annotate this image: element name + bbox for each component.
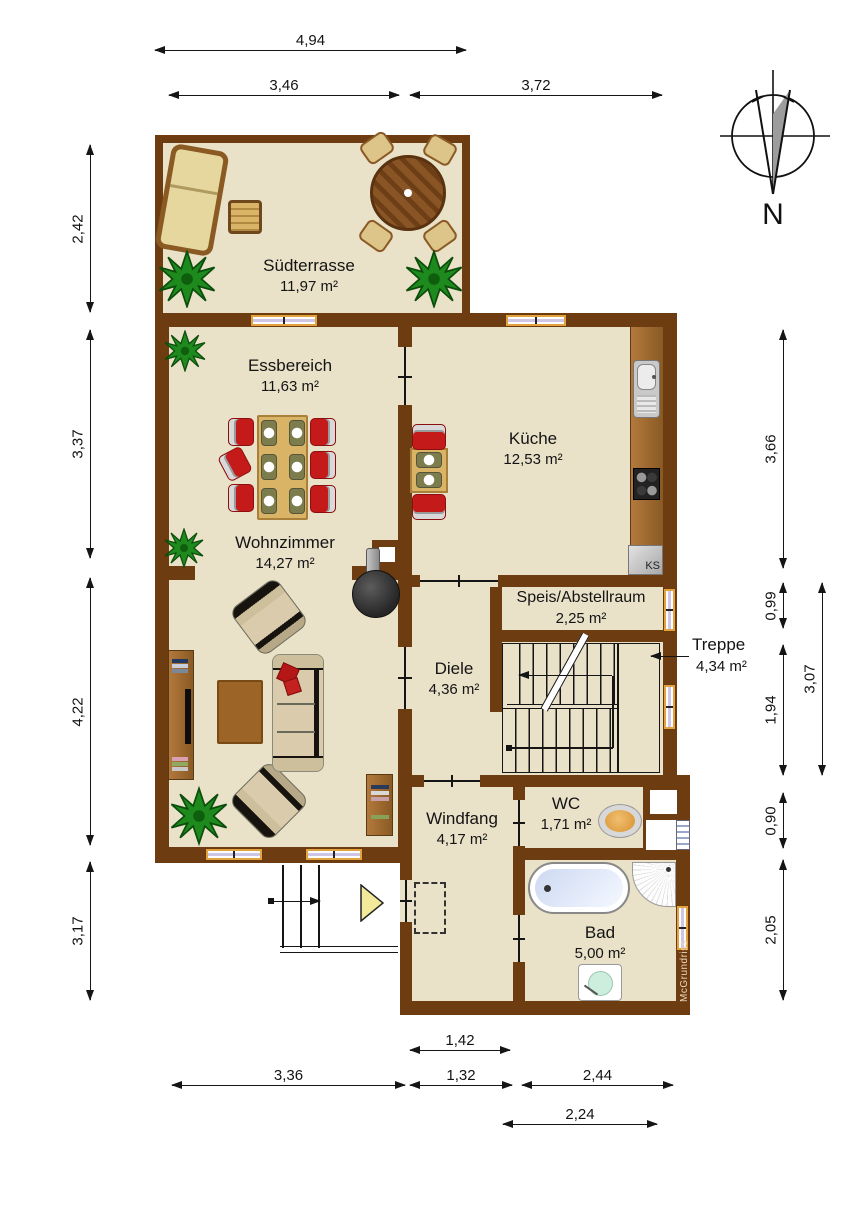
stairs-lower-flight: [503, 708, 617, 772]
door-tick: [513, 822, 525, 824]
dim-bottom-windfang-outer: 1,42: [410, 1050, 510, 1051]
entry-direction-arrow: [272, 901, 320, 902]
room-label-essbereich: Essbereich 11,63 m²: [248, 355, 332, 397]
dim-left-essbereich: 3,37: [90, 330, 91, 558]
tv: [185, 689, 191, 744]
dim-bottom-windfang: 1,32: [410, 1085, 512, 1086]
room-label-bad: Bad 5,00 m²: [575, 922, 626, 964]
stairs-walkline: [612, 676, 614, 748]
stove-cooktop: [633, 468, 660, 500]
kitchen-chair: [412, 424, 446, 450]
tv-board: [168, 650, 194, 780]
dim-left-wohnzimmer: 4,22: [90, 578, 91, 845]
door-tick: [458, 575, 460, 587]
dim-right-wc: 0,90: [783, 793, 784, 848]
place-setting: [416, 472, 442, 488]
plant-icon: [158, 250, 216, 308]
entry-recess: [646, 820, 676, 850]
wall-stub-left: [169, 566, 195, 580]
outdoor-step: [318, 865, 320, 948]
dim-top-left: 3,46: [169, 95, 399, 96]
room-label-wc: WC 1,71 m²: [541, 793, 592, 835]
entry-steps: [676, 820, 690, 850]
wall-diele-treppe: [490, 587, 502, 712]
door-tick: [398, 376, 412, 378]
window: [250, 314, 318, 327]
kitchen-chair: [412, 494, 446, 520]
stairs-walkline: [509, 747, 613, 749]
place-setting: [289, 454, 305, 480]
place-setting: [261, 420, 277, 446]
wardrobe-placeholder: [414, 882, 446, 934]
door-tick: [398, 677, 412, 679]
treppe-pointer-arrow: [651, 656, 689, 657]
room-label-speis: Speis/Abstellraum 2,25 m²: [517, 588, 646, 628]
place-setting: [261, 488, 277, 514]
door-tick: [513, 938, 525, 940]
toilet: [598, 804, 642, 838]
watermark: McGrundriss: [679, 940, 690, 1002]
shelf: [366, 774, 393, 836]
entry-recess: [650, 790, 677, 814]
sofa: [272, 654, 324, 772]
dining-chair: [228, 418, 254, 446]
room-label-windfang: Windfang 4,17 m²: [426, 808, 498, 850]
place-setting: [416, 452, 442, 468]
dim-right-kueche: 3,66: [783, 330, 784, 568]
plant-icon: [164, 528, 204, 568]
dining-chair: [310, 485, 336, 513]
round-table: [370, 155, 446, 231]
compass-icon: N: [716, 62, 836, 232]
stairs-landing-line: [617, 643, 619, 773]
room-label-diele: Diele 4,36 m²: [429, 658, 480, 700]
room-label-treppe: Treppe 4,34 m²: [692, 634, 747, 677]
place-setting: [261, 454, 277, 480]
dining-chair: [310, 418, 336, 446]
place-setting: [289, 488, 305, 514]
dining-chair: [228, 484, 254, 512]
window: [205, 848, 263, 861]
dim-right-outer: 3,07: [822, 583, 823, 775]
door-tick: [400, 900, 412, 902]
dim-right-treppe: 1,94: [783, 645, 784, 775]
dim-bottom-bad-outer: 2,44: [522, 1085, 673, 1086]
entrance-marker-icon: [360, 884, 384, 922]
room-label-suedterrasse: Südterrasse 11,97 m²: [263, 255, 355, 297]
dim-bottom-bad: 2,24: [503, 1124, 657, 1125]
coffee-table: [217, 680, 263, 744]
washbasin: [578, 964, 622, 1001]
plant-icon: [170, 785, 228, 847]
stairs-direction-arrow: [519, 675, 612, 676]
chimney-flue: [379, 547, 395, 562]
outdoor-step: [282, 865, 284, 948]
dim-left-bottom: 3,17: [90, 862, 91, 1000]
place-setting: [289, 420, 305, 446]
fridge: KS: [628, 545, 663, 575]
dim-bottom-wohnzimmer: 3,36: [172, 1085, 405, 1086]
dim-right-bad: 2,05: [783, 860, 784, 1000]
compass-north-label: N: [762, 198, 784, 231]
dim-top-right: 3,72: [410, 95, 662, 96]
fridge-label: KS: [645, 560, 660, 572]
room-label-wohnzimmer: Wohnzimmer 14,27 m²: [235, 532, 335, 574]
side-table: [228, 200, 262, 234]
window: [663, 588, 676, 632]
window: [505, 314, 567, 327]
wood-stove: [352, 570, 400, 618]
kitchen-sink: [633, 360, 660, 418]
room-label-kueche: Küche 12,53 m²: [503, 428, 562, 470]
dim-top-overall: 4,94: [155, 50, 466, 51]
dim-left-terrace: 2,42: [90, 145, 91, 312]
window: [663, 684, 676, 730]
plant-icon: [164, 330, 206, 372]
dim-right-speis: 0,99: [783, 583, 784, 628]
bathtub: [528, 862, 630, 914]
outdoor-step: [300, 865, 302, 948]
outdoor-landing: [280, 946, 398, 953]
floor-plan: 4,94 3,46 3,72 2,42 3,37 4,22 3,17 3,66 …: [0, 0, 864, 1216]
door-tick: [451, 775, 453, 787]
plant-icon: [404, 250, 464, 308]
dining-chair: [310, 451, 336, 479]
window: [305, 848, 363, 861]
